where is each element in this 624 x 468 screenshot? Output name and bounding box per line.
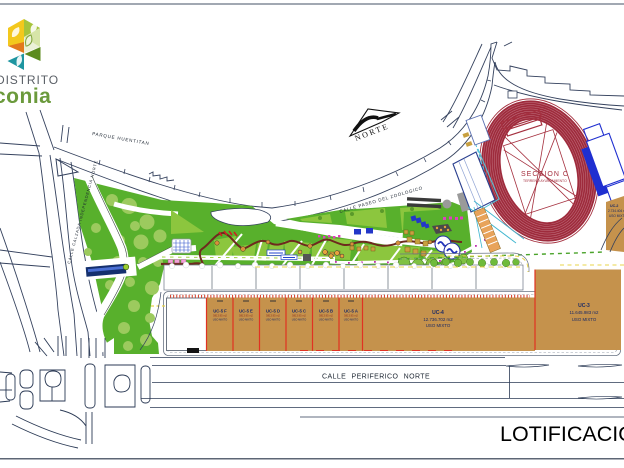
svg-text:conia: conia: [0, 85, 51, 108]
svg-text:UC-5 B: UC-5 B: [319, 309, 333, 314]
svg-text:USO MIXTO: USO MIXTO: [344, 318, 359, 322]
svg-text:UC-5 E: UC-5 E: [239, 309, 253, 314]
svg-text:USO MIXTO: USO MIXTO: [609, 214, 624, 218]
svg-text:USO MIXTO: USO MIXTO: [319, 318, 334, 322]
svg-text:11.645.983 m2: 11.645.983 m2: [570, 310, 600, 315]
svg-text:UC-5 D: UC-5 D: [266, 309, 280, 314]
svg-text:UC-4: UC-4: [432, 310, 444, 316]
svg-text:5813.95 m2: 5813.95 m2: [266, 314, 280, 318]
svg-text:UC-5 A: UC-5 A: [344, 309, 358, 314]
svg-text:2.734.404 m2: 2.734.404 m2: [608, 209, 624, 213]
svg-text:USO MIXTO: USO MIXTO: [239, 318, 254, 322]
svg-text:USO MIXTO: USO MIXTO: [266, 318, 281, 322]
svg-text:12.736.702 m2: 12.736.702 m2: [423, 317, 453, 322]
svg-text:UC-2: UC-2: [610, 204, 618, 208]
svg-text:5813.95 m2: 5813.95 m2: [213, 314, 227, 318]
svg-text:CALLE PERIFERICO NORTE: CALLE PERIFERICO NORTE: [322, 374, 430, 381]
svg-text:UC-5 F: UC-5 F: [213, 309, 227, 314]
svg-text:UC-5 C: UC-5 C: [292, 309, 306, 314]
svg-text:LOTIFICACIÓN: LOTIFICACIÓN: [500, 421, 624, 446]
svg-text:5813.95 m2: 5813.95 m2: [344, 314, 358, 318]
svg-text:SECCION C: SECCION C: [521, 171, 569, 178]
svg-text:5813.95 m2: 5813.95 m2: [292, 314, 306, 318]
svg-text:5813.95 m2: 5813.95 m2: [239, 314, 253, 318]
svg-text:TERRENO AYUNTAMIENTO: TERRENO AYUNTAMIENTO: [523, 179, 567, 183]
svg-text:5813.95 m2: 5813.95 m2: [319, 314, 333, 318]
svg-text:USO MIXTO: USO MIXTO: [292, 318, 307, 322]
svg-text:USO MIXTO: USO MIXTO: [213, 318, 228, 322]
svg-text:USO MIXTO: USO MIXTO: [426, 323, 451, 328]
svg-text:UC-3: UC-3: [578, 303, 590, 309]
svg-text:USO MIXTO: USO MIXTO: [572, 317, 597, 322]
